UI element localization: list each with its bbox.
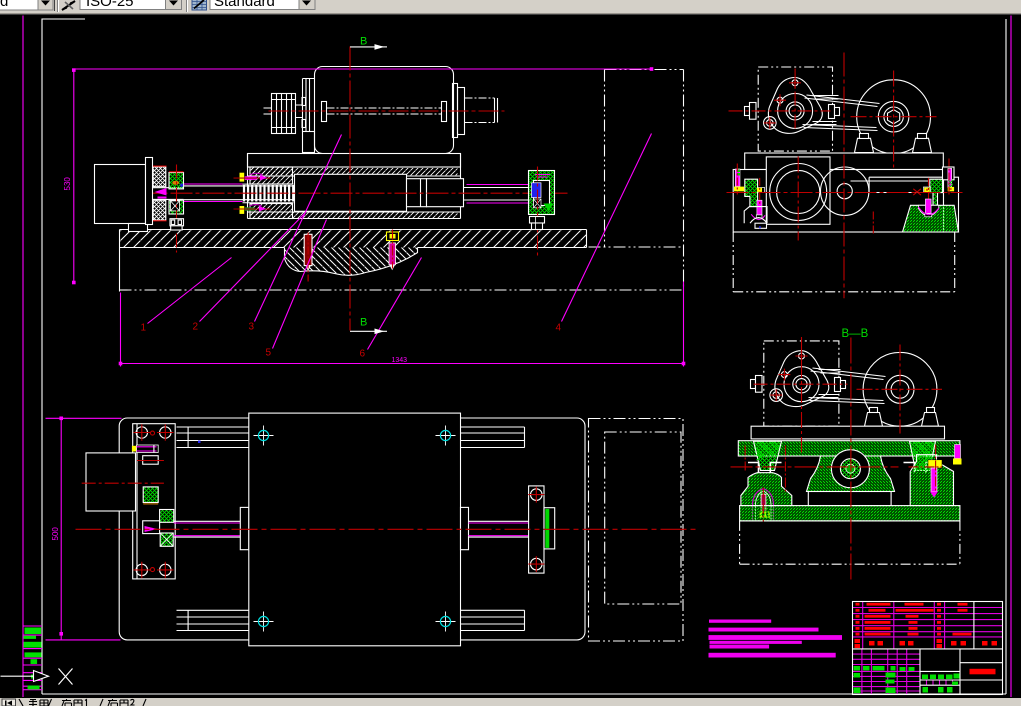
svg-text:530: 530 <box>63 177 72 191</box>
svg-text:5: 5 <box>266 348 272 359</box>
svg-text:4: 4 <box>556 323 562 334</box>
svg-text:500: 500 <box>51 527 60 541</box>
svg-text:B: B <box>360 36 367 48</box>
svg-text:2: 2 <box>193 322 199 333</box>
svg-text:B: B <box>360 317 367 329</box>
svg-text:3: 3 <box>249 322 255 333</box>
svg-text:1: 1 <box>141 323 147 334</box>
svg-text:d: d <box>0 0 8 10</box>
svg-text:Standard: Standard <box>214 0 275 10</box>
svg-text:6: 6 <box>360 349 366 360</box>
svg-text:B—B: B—B <box>842 328 869 340</box>
svg-text:1343: 1343 <box>392 357 408 364</box>
svg-text:ISO-25: ISO-25 <box>86 0 134 10</box>
